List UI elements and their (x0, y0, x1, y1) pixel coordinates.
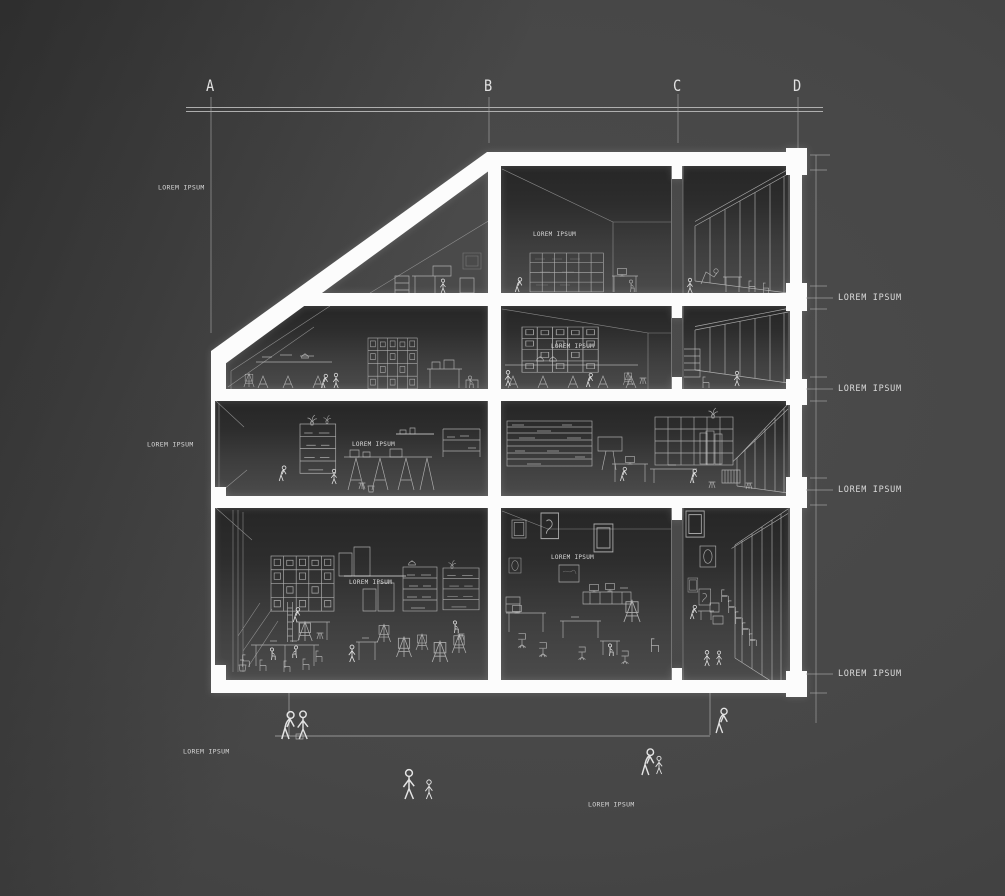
grid-letter-c: C (673, 78, 681, 94)
room-ground-ab (216, 508, 487, 680)
section-canvas: A B C D LOREM IPSUM LOREM IPSUM LOREM IP… (0, 0, 1005, 896)
ground-slab (211, 680, 803, 693)
floor-slab-4 (211, 496, 803, 508)
grid-letter-a: A (206, 78, 214, 94)
grid-letter-b: B (484, 78, 492, 94)
room-label-ground-ab: LOREM IPSUM (349, 580, 392, 586)
floor-slab-3 (211, 389, 803, 401)
room-l2-ab (216, 401, 487, 496)
room-top-bc (501, 166, 672, 293)
label-left-middle: LOREM IPSUM (147, 442, 194, 449)
label-left-upper: LOREM IPSUM (158, 185, 205, 192)
room-label-l3-bc: LOREM IPSUM (551, 344, 594, 350)
room-label-attic-bc: LOREM IPSUM (533, 232, 576, 238)
wall-d (790, 152, 802, 693)
floor-slab-2 (293, 293, 803, 306)
label-bottom-left: LOREM IPSUM (183, 749, 230, 756)
level-label-3: LOREM IPSUM (838, 486, 902, 495)
column-b (488, 152, 501, 681)
level-label-1: LOREM IPSUM (838, 294, 902, 303)
grid-letter-d: D (793, 78, 801, 94)
room-ground-bc (501, 508, 672, 680)
roof-slab (487, 152, 803, 166)
room-ground-cd (683, 508, 788, 692)
street-scene (275, 693, 727, 799)
room-l3-cd (683, 306, 788, 389)
room-label-l2-ab: LOREM IPSUM (352, 442, 395, 448)
room-label-ground-bc: LOREM IPSUM (551, 555, 594, 561)
level-label-4: LOREM IPSUM (838, 670, 902, 679)
dimension-line-right (806, 155, 833, 723)
level-label-2: LOREM IPSUM (838, 385, 902, 394)
room-l2-bcd (501, 401, 788, 496)
room-top-cd (683, 166, 788, 293)
label-bottom-center: LOREM IPSUM (588, 802, 635, 809)
